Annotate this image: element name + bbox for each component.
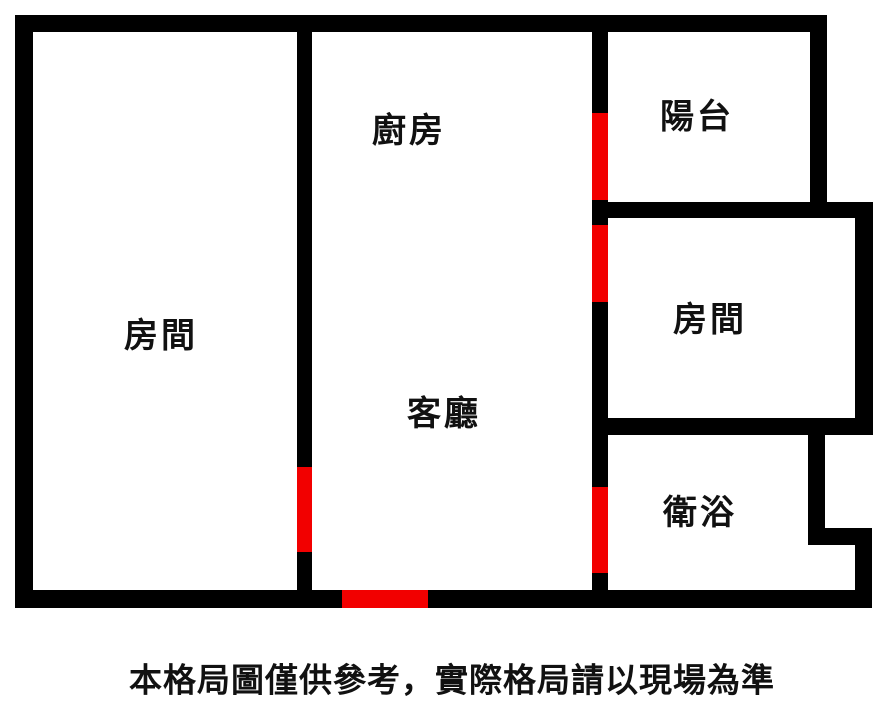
door-kitchen-room-marker <box>592 225 608 302</box>
outer-wall-top <box>15 15 827 32</box>
notch-left-wall <box>808 418 825 545</box>
room-left-label: 房間 <box>124 319 198 353</box>
floor-plan: 房間 廚房 客廳 陽台 房間 衛浴 <box>0 0 889 719</box>
right-wall-upper <box>855 202 873 435</box>
outer-wall-left <box>15 15 33 608</box>
door-kitchen-balcony-marker <box>592 113 608 200</box>
balcony-label: 陽台 <box>660 100 734 134</box>
right-wall-lower <box>855 528 872 607</box>
bathroom-label: 衛浴 <box>663 496 737 530</box>
living-room-label: 客廳 <box>407 397 481 431</box>
door-living-bathroom-marker <box>592 487 608 573</box>
floor-plan-page: 房間 廚房 客廳 陽台 房間 衛浴 本格局圖僅供參考，實際格局請以現場為準 <box>0 0 889 719</box>
kitchen-label: 廚房 <box>372 114 446 148</box>
balcony-bottom-wall <box>592 202 873 218</box>
door-living-room-left-marker <box>297 467 312 552</box>
balcony-right-wall <box>810 15 827 218</box>
bathroom-top-wall <box>592 418 873 435</box>
door-main-entrance-marker <box>342 590 428 608</box>
disclaimer-caption: 本格局圖僅供參考，實際格局請以現場為準 <box>129 664 775 697</box>
room-right-label: 房間 <box>673 303 747 337</box>
outer-wall-bottom <box>15 590 872 608</box>
